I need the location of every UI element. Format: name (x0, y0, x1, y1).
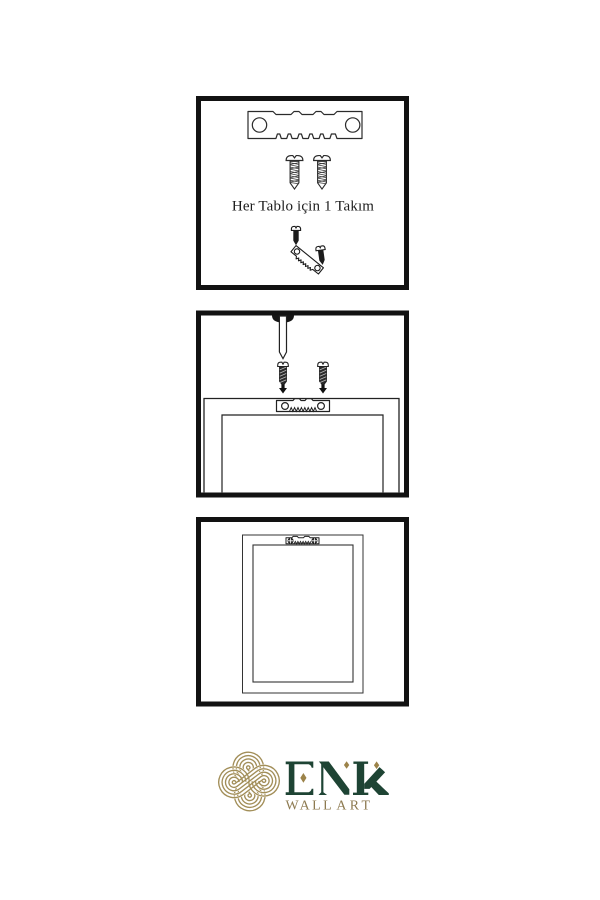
svg-text:WALL: WALL (286, 798, 335, 813)
svg-text:ART: ART (336, 798, 373, 813)
svg-text:Her Tablo için 1 Takım: Her Tablo için 1 Takım (232, 199, 374, 215)
